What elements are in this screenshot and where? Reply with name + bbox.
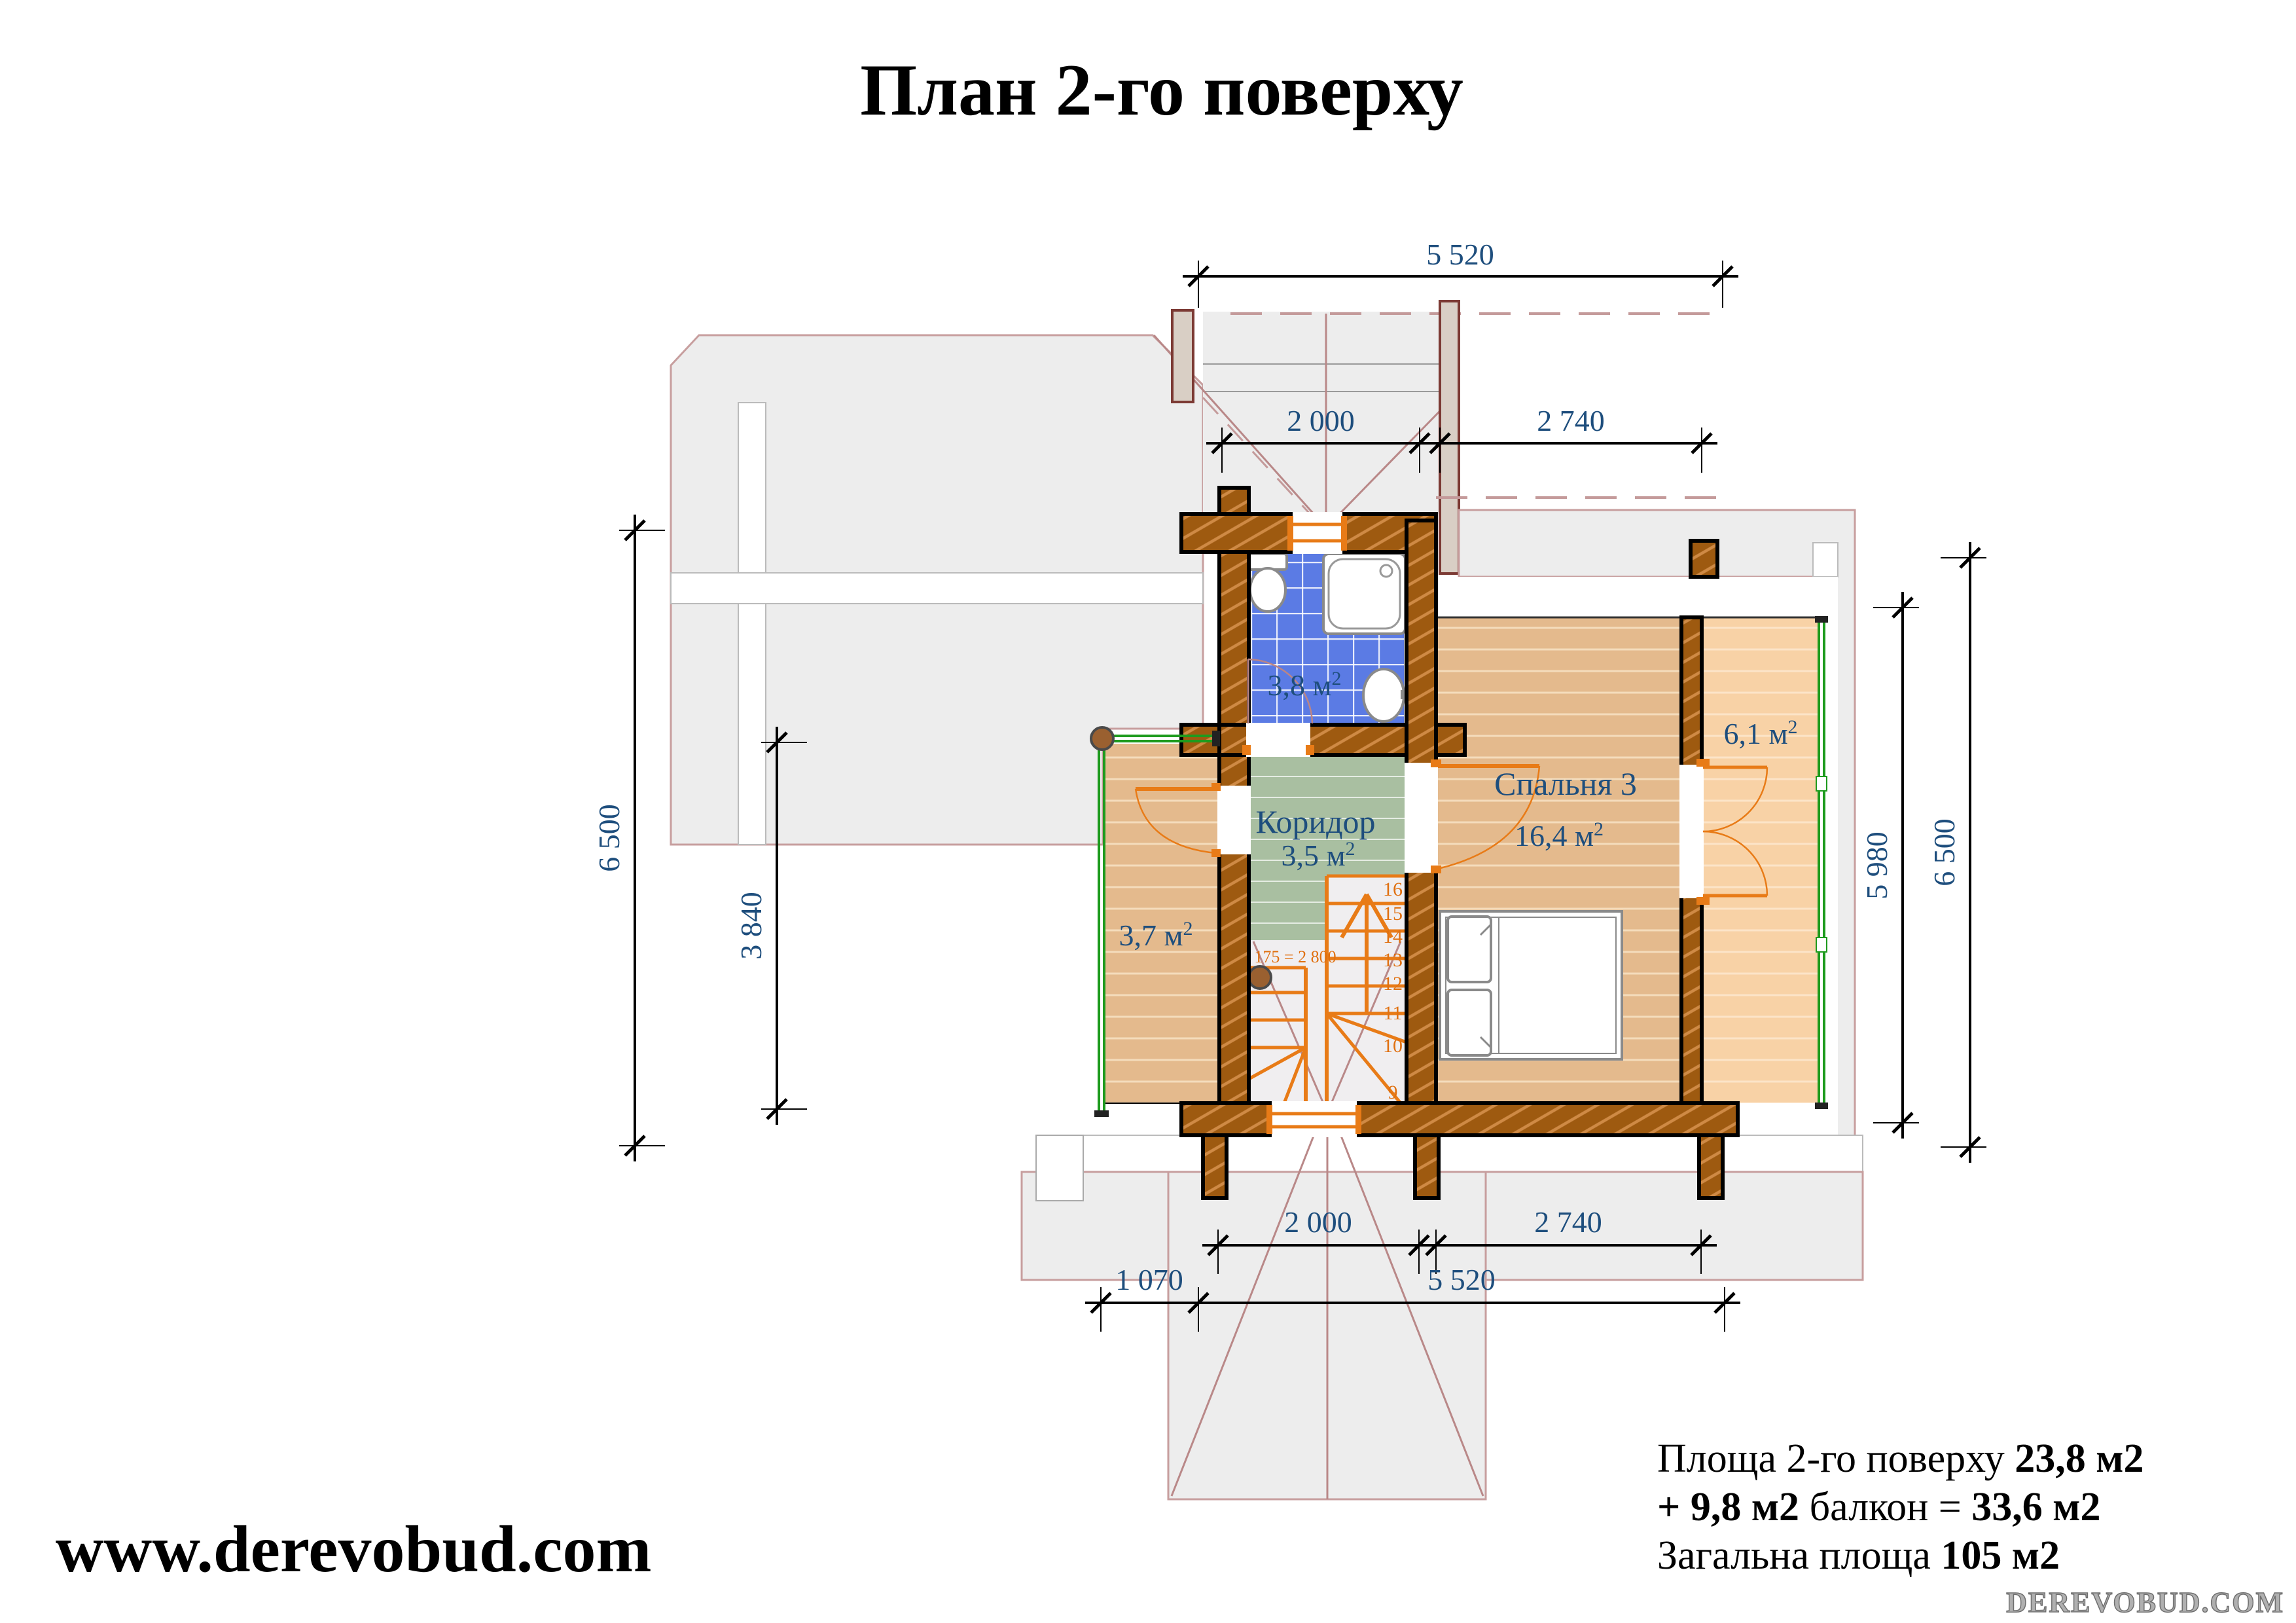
toilet bbox=[1249, 554, 1287, 611]
stair-number: 9 bbox=[1388, 1082, 1398, 1103]
door-opening-annex bbox=[1217, 786, 1251, 854]
roof-left-ridge-horizontal bbox=[671, 573, 1203, 604]
porch-white-stub bbox=[1036, 1135, 1083, 1201]
stair-number: 11 bbox=[1384, 1002, 1403, 1024]
svg-text:Загальна площа 105 м2: Загальна площа 105 м2 bbox=[1657, 1533, 2060, 1578]
window-top bbox=[1287, 512, 1347, 554]
stair-number: 10 bbox=[1383, 1035, 1403, 1057]
svg-text:Площа 2-го поверху 23,8 м2: Площа 2-го поверху 23,8 м2 bbox=[1657, 1436, 2144, 1481]
door-opening-bedroom bbox=[1405, 763, 1438, 873]
svg-text:+ 9,8 м2 балкон = 33,6 м2: + 9,8 м2 балкон = 33,6 м2 bbox=[1657, 1485, 2100, 1529]
dim-top-right: 2 740 bbox=[1537, 404, 1605, 437]
site-url: www.derevobud.com bbox=[56, 1512, 651, 1586]
dim-top-overall: 5 520 bbox=[1426, 238, 1494, 271]
railing-post bbox=[1091, 727, 1113, 750]
roof-left-ridge-vertical bbox=[738, 403, 766, 845]
door-opening-balcony bbox=[1679, 765, 1704, 898]
label-balcony-area: 6,1 м2 bbox=[1723, 716, 1797, 750]
stair-number: 14 bbox=[1383, 926, 1403, 947]
watermark: DEREVOBUD.COM bbox=[2006, 1586, 2284, 1618]
first-floor-wall-strip bbox=[1172, 310, 1193, 402]
shower-cabin bbox=[1323, 554, 1405, 634]
window-bottom bbox=[1266, 1101, 1361, 1137]
wall-left-upper bbox=[1219, 552, 1249, 725]
label-bedroom-name: Спальня 3 bbox=[1494, 765, 1637, 802]
label-bedroom-area: 16,4 м2 bbox=[1515, 818, 1604, 852]
stair-number: 12 bbox=[1383, 973, 1403, 994]
region-roof-right bbox=[1459, 510, 1855, 577]
wall-stub bbox=[1436, 725, 1465, 755]
label-bathroom-area: 3,8 м2 bbox=[1267, 668, 1341, 702]
dim-bottom-left: 2 000 bbox=[1284, 1205, 1352, 1239]
area-summary: Площа 2-го поверху 23,8 м2 + 9,8 м2 балк… bbox=[1657, 1436, 2144, 1578]
label-corridor-name: Коридор bbox=[1255, 803, 1375, 840]
wall-stub bbox=[1691, 541, 1717, 577]
dim-bottom-offset: 1 070 bbox=[1115, 1263, 1183, 1296]
dim-right-inner: 5 980 bbox=[1860, 831, 1893, 900]
eaves-white-band bbox=[1436, 577, 1838, 617]
dim-bottom-overall: 5 520 bbox=[1427, 1263, 1496, 1296]
room-balcony-floor bbox=[1702, 617, 1819, 1103]
wall-stub bbox=[1699, 1135, 1723, 1198]
stair-number: 16 bbox=[1383, 879, 1403, 900]
dim-top-left: 2 000 bbox=[1287, 404, 1355, 437]
porch-wall-band bbox=[1068, 1135, 1863, 1172]
floor-plan-canvas: 5 520 2 000 2 740 2 000 2 740 1 070 5 52… bbox=[0, 0, 2296, 1623]
newel-post bbox=[1249, 966, 1271, 989]
label-annex-area: 3,7 м2 bbox=[1119, 918, 1193, 952]
first-floor-wall-strip bbox=[1440, 301, 1459, 574]
stair-number: 15 bbox=[1383, 903, 1403, 924]
label-corridor-area: 3,5 м2 bbox=[1281, 838, 1355, 872]
wall-stub bbox=[1203, 1135, 1227, 1198]
dim-right-overall: 6 500 bbox=[1928, 818, 1961, 886]
dim-left-overall: 6 500 bbox=[592, 804, 626, 872]
page-title: План 2-го поверху bbox=[860, 50, 1463, 131]
stair-number: 13 bbox=[1383, 949, 1403, 971]
roof-right-notch bbox=[1813, 543, 1838, 577]
railing-cap bbox=[1212, 731, 1220, 746]
wall-bottom bbox=[1181, 1103, 1738, 1135]
pillow bbox=[1448, 917, 1491, 982]
dim-bottom-right: 2 740 bbox=[1534, 1205, 1602, 1239]
door-opening-bath bbox=[1246, 723, 1310, 757]
dim-left-annex: 3 840 bbox=[734, 892, 768, 960]
railing-cap bbox=[1094, 1110, 1109, 1117]
wall-stub bbox=[1219, 488, 1249, 514]
floor-plan-page: 5 520 2 000 2 740 2 000 2 740 1 070 5 52… bbox=[0, 0, 2296, 1623]
wall-stub bbox=[1415, 1135, 1439, 1198]
bed bbox=[1440, 911, 1622, 1059]
pillow bbox=[1448, 990, 1491, 1055]
